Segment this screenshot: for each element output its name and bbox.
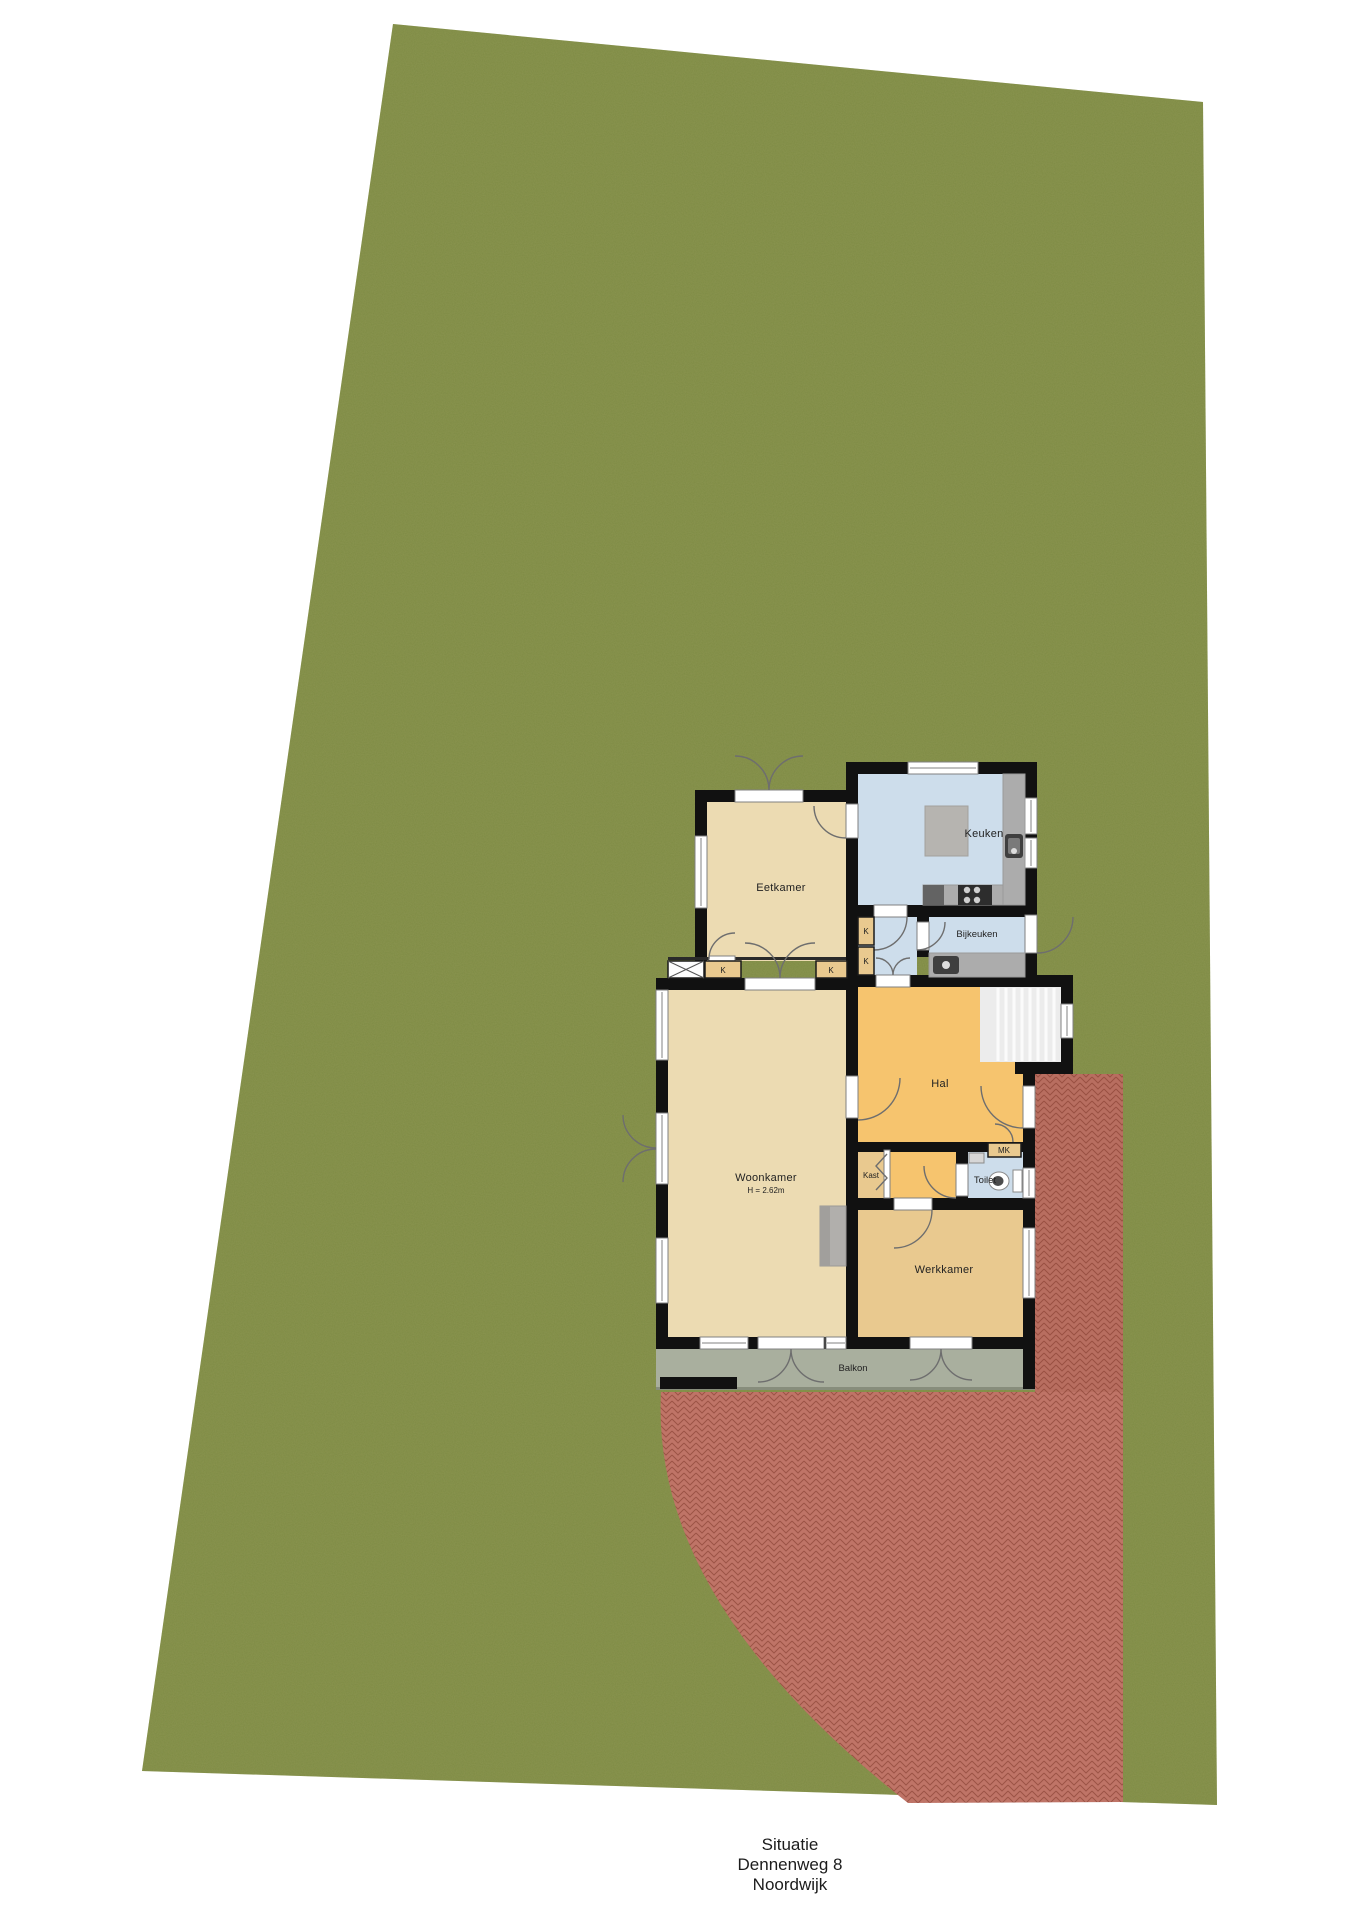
closet-k3-label: K [863, 927, 869, 936]
shaft-box [668, 961, 704, 978]
closet-k1-label: K [720, 966, 726, 975]
cooktop [958, 885, 992, 905]
werkkamer-label: Werkkamer [915, 1264, 974, 1276]
balkon-label: Balkon [838, 1363, 867, 1374]
toilet-label: Toilet [974, 1175, 997, 1186]
kast-label: Kast [863, 1171, 880, 1180]
keuken-label: Keuken [964, 828, 1003, 840]
hal-label: Hal [931, 1078, 948, 1090]
closet-k2-label: K [828, 966, 834, 975]
caption: Situatie Dennenweg 8 Noordwijk [738, 1835, 843, 1894]
caption-address: Dennenweg 8 [738, 1855, 843, 1874]
caption-title: Situatie [762, 1835, 819, 1854]
toilet-basin [969, 1153, 984, 1163]
eetkamer-label: Eetkamer [756, 882, 806, 894]
terrace-path-shade [1035, 1074, 1123, 1392]
kitchen-cabinet [923, 885, 944, 905]
situatie-plan: Eetkamer Keuken Bijkeuken Hal Woonkamer … [0, 0, 1358, 1920]
closet-k4-label: K [863, 957, 869, 966]
woonkamer-ceiling-label: H = 2.62m [747, 1186, 784, 1195]
staircase [980, 987, 1061, 1062]
site-plan-page: Eetkamer Keuken Bijkeuken Hal Woonkamer … [0, 0, 1358, 1920]
mk-label: MK [998, 1146, 1011, 1155]
bijkeuken-sink [933, 956, 959, 974]
caption-city: Noordwijk [753, 1875, 828, 1894]
fireplace [820, 1206, 846, 1266]
bijkeuken-label: Bijkeuken [956, 929, 997, 940]
kitchen-island [925, 806, 968, 856]
woonkamer-floor [668, 990, 846, 1337]
kitchen-sink [1005, 834, 1023, 858]
woonkamer-label: Woonkamer [735, 1172, 797, 1184]
